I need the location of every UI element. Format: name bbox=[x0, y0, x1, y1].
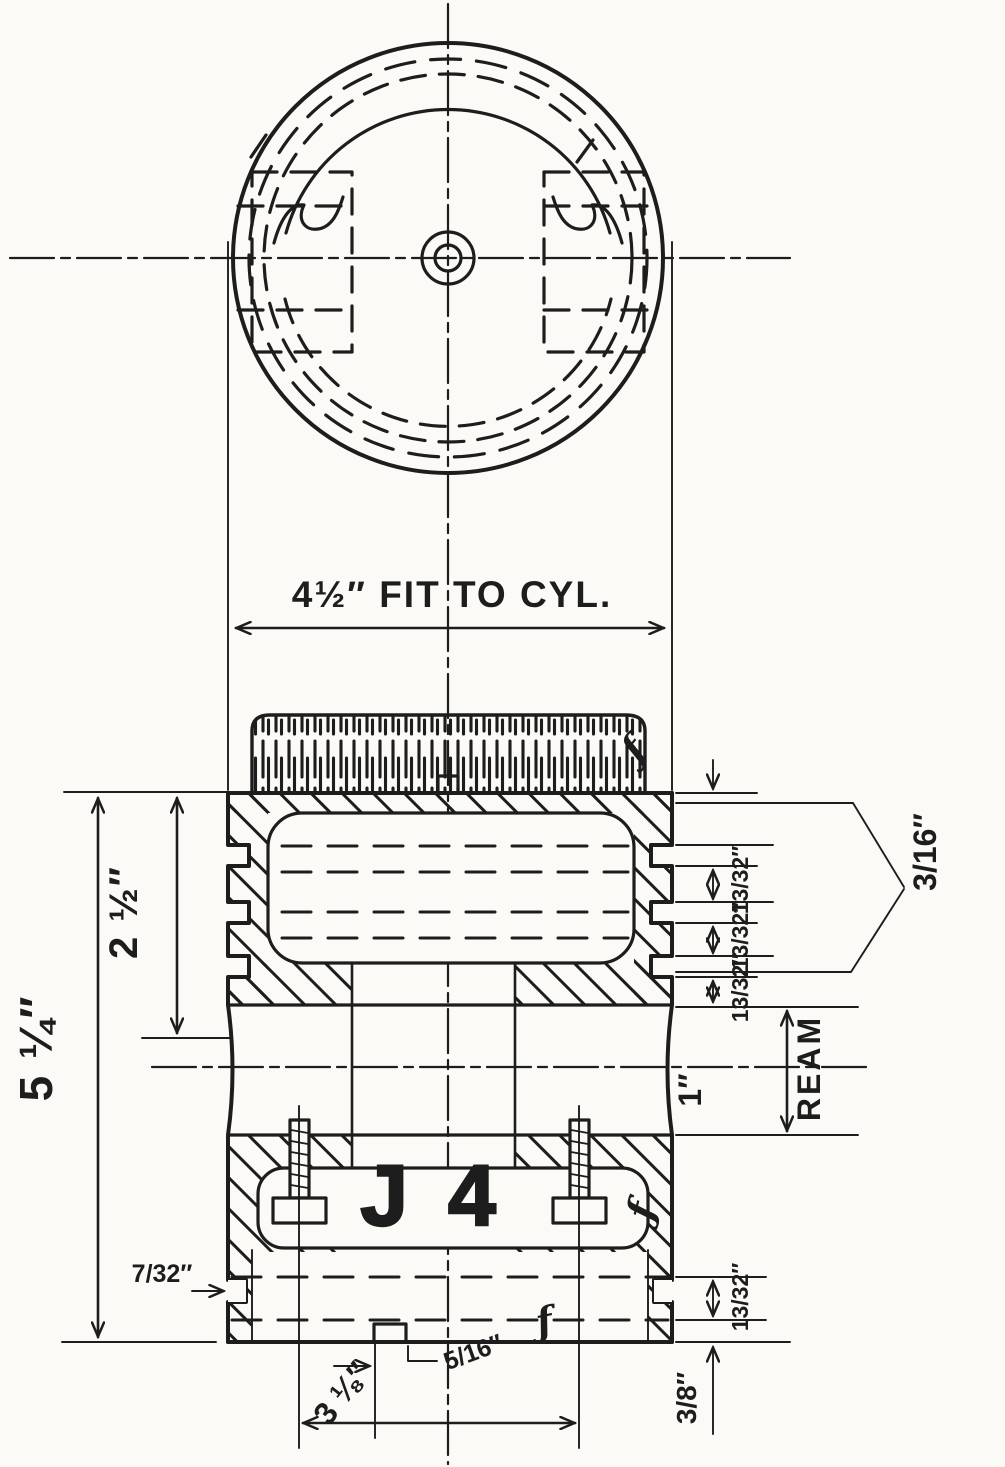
bottom-dimensions: 3 ⅛″ 5/16″ bbox=[303, 1329, 575, 1431]
piston-drawing-sheet: 4½″ FIT TO CYL. bbox=[0, 0, 1005, 1467]
pin-bore-dimension: 1″ REAM bbox=[672, 1007, 858, 1135]
dim-ring-width: 3/16″ bbox=[907, 813, 943, 891]
dim-upper-height: 2 ½″ bbox=[102, 865, 146, 959]
dim-base-offset: 3/8″ bbox=[671, 1372, 702, 1424]
ring-dimensions: 13/32″ 13/32″ 13/32″ 3/16″ bbox=[676, 760, 943, 1022]
ring-extension-lines bbox=[676, 793, 773, 977]
bore-dimension: 4½″ FIT TO CYL. bbox=[228, 242, 672, 790]
piston-crown-rough bbox=[252, 715, 645, 793]
section-view: J 4 ƒ ƒ ƒ bbox=[228, 715, 672, 1448]
ring-width-chevron bbox=[676, 803, 904, 972]
crown-cavity bbox=[268, 813, 634, 963]
ring-end-scallop-left bbox=[274, 197, 343, 243]
bottom-nub bbox=[374, 1324, 406, 1342]
skirt-groove-hidden-lines bbox=[232, 1277, 668, 1320]
dim-pin-bore: 1″ bbox=[672, 1073, 708, 1106]
pin-boss-hidden-right bbox=[544, 172, 644, 352]
ring-end-scallop-right bbox=[553, 197, 622, 243]
ring-gap-pin-mark-right bbox=[577, 140, 593, 162]
piston-drawing: 4½″ FIT TO CYL. bbox=[0, 0, 1005, 1467]
dim-skirt-land: 13/32″ bbox=[727, 1263, 753, 1332]
pin-boss-hidden-left bbox=[252, 172, 352, 352]
dim-skirt-groove-width: 7/32″ bbox=[132, 1260, 193, 1288]
vent-leader-line bbox=[408, 1346, 437, 1361]
bottom-right-dimensions: 13/32″ 3/8″ bbox=[671, 1263, 790, 1434]
dim-vent-width: 5/16″ bbox=[440, 1329, 507, 1376]
dim-fit-to-cyl: 4½″ FIT TO CYL. bbox=[292, 574, 612, 615]
part-mark: J 4 bbox=[360, 1148, 504, 1244]
dim-overall-height: 5 ¼″ bbox=[10, 995, 62, 1102]
dim-ring-land-3: 13/32″ bbox=[727, 954, 753, 1023]
dim-ream-note: REAM bbox=[791, 1015, 827, 1121]
